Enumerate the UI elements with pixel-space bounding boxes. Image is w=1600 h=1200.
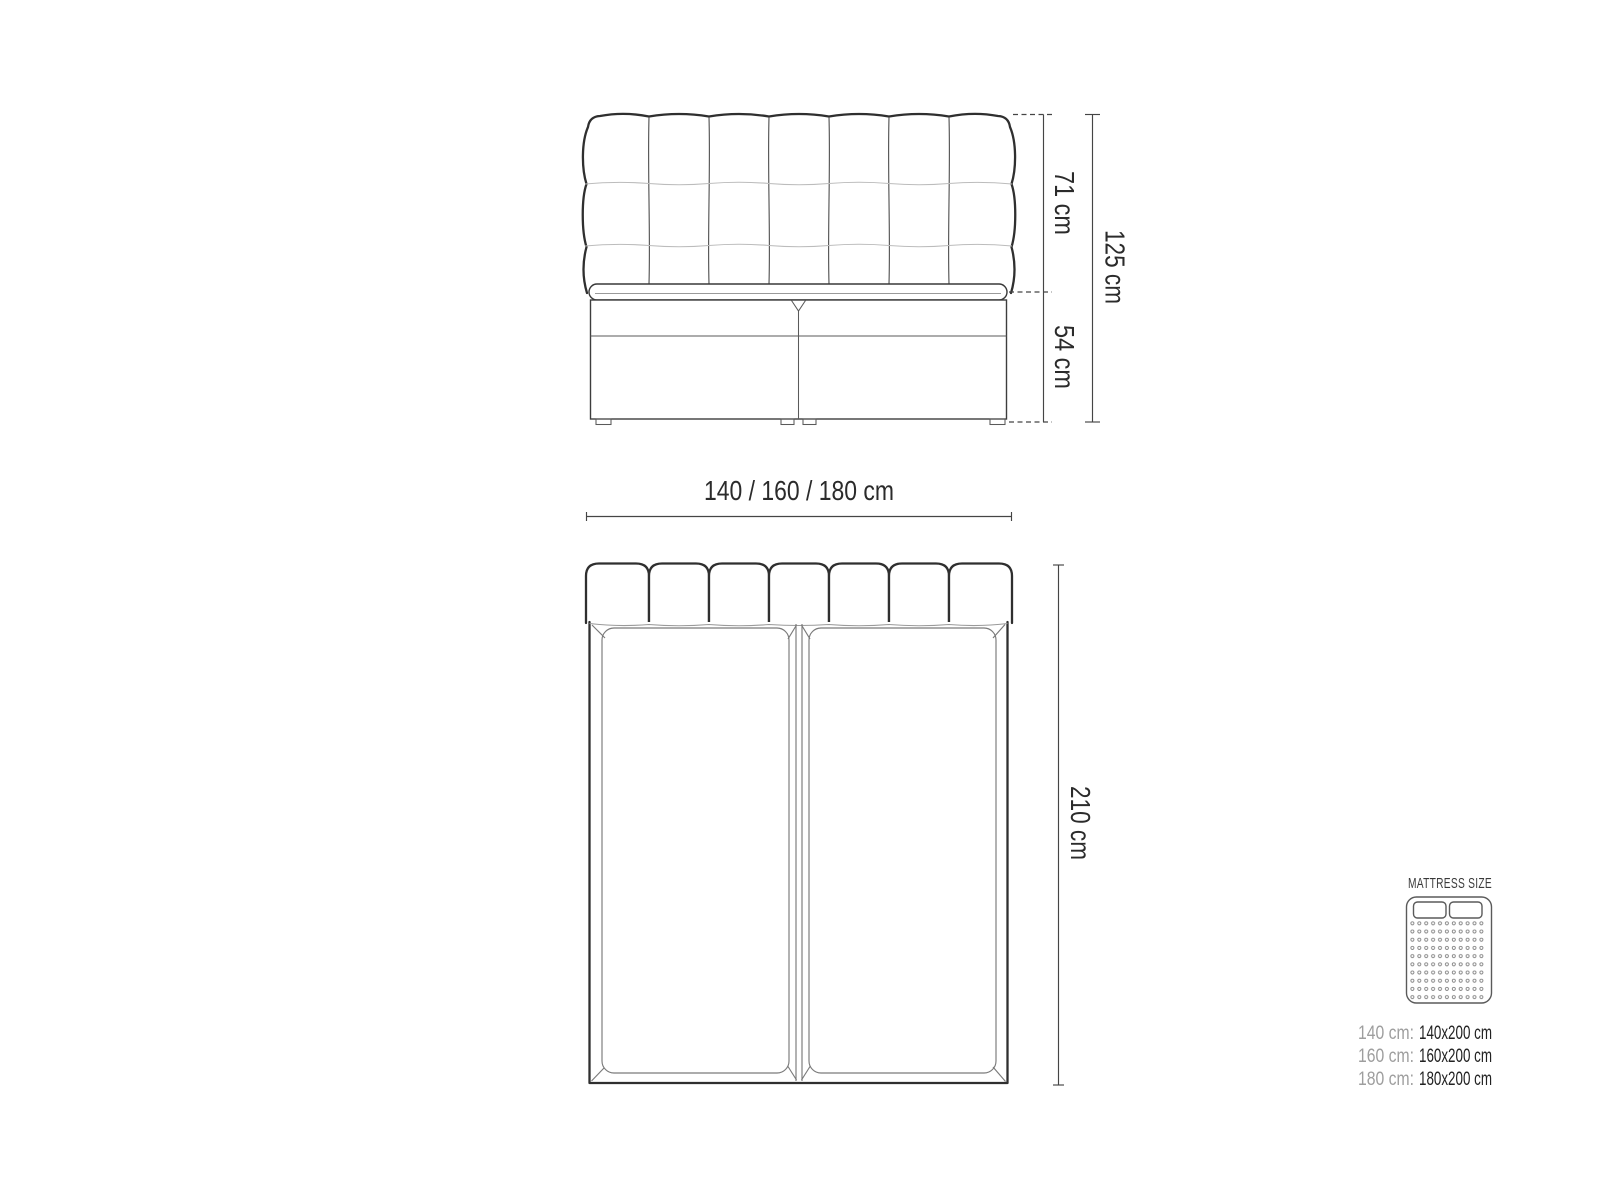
- tuft-segment: [889, 564, 949, 624]
- dimension-label-total-height: 125 cm: [1100, 230, 1131, 304]
- size-row-label: 140 cm:: [1358, 1022, 1414, 1044]
- size-row-label: 160 cm:: [1358, 1045, 1414, 1067]
- storage-base: [591, 300, 1007, 425]
- bed-foot: [596, 419, 611, 425]
- bed-foot: [781, 419, 794, 425]
- size-row-label: 180 cm:: [1358, 1068, 1414, 1090]
- mattress-size-list: 140 cm: 140x200 cm 160 cm: 160x200 cm 18…: [1358, 1022, 1492, 1090]
- size-row-value: 140x200 cm: [1419, 1022, 1492, 1044]
- mattress-size-legend: MATTRESS SIZE 140 cm: 140x200 cm 160 cm:…: [1358, 875, 1492, 1090]
- tuft-segment: [709, 564, 769, 624]
- width-dimension: 140 / 160 / 180 cm: [587, 475, 1012, 521]
- size-row-value: 160x200 cm: [1419, 1045, 1492, 1067]
- tuft-segment: [829, 564, 889, 624]
- tuft-segment: [649, 564, 709, 624]
- dimension-label-length: 210 cm: [1065, 786, 1096, 860]
- bed-frame-top: [590, 622, 1008, 1083]
- bed-foot: [990, 419, 1005, 425]
- dimension-label-lower-height: 54 cm: [1049, 325, 1080, 389]
- pillow-icon: [1414, 902, 1447, 918]
- bed-foot: [803, 419, 816, 425]
- mattress-size-title: MATTRESS SIZE: [1408, 875, 1492, 892]
- dimension-label-upper-height: 71 cm: [1049, 171, 1080, 235]
- top-view: [586, 564, 1012, 1084]
- size-row-value: 180x200 cm: [1419, 1068, 1492, 1090]
- pillow-icon: [1450, 902, 1483, 918]
- dimension-label-width-options: 140 / 160 / 180 cm: [704, 475, 894, 506]
- tuft-segment: [949, 564, 1012, 624]
- mattress-icon: [1407, 897, 1492, 1003]
- headboard-outline: [583, 114, 1016, 293]
- mattress-icon-dots: [1410, 921, 1486, 1000]
- front-height-dimensions: 71 cm 54 cm 125 cm: [1009, 115, 1131, 423]
- headboard-tufts-top: [586, 564, 1012, 624]
- diagram-svg: 71 cm 54 cm 125 cm 140 / 160 / 180 cm: [0, 0, 1600, 1200]
- mattress-rail-body: [589, 284, 1007, 300]
- length-dimension: 210 cm: [1053, 565, 1096, 1085]
- bed-dimension-diagram: 71 cm 54 cm 125 cm 140 / 160 / 180 cm: [0, 0, 1600, 1200]
- tuft-segment: [769, 564, 829, 624]
- mattress-rail: [589, 284, 1007, 300]
- front-view: [583, 114, 1016, 425]
- tuft-segment: [586, 564, 649, 624]
